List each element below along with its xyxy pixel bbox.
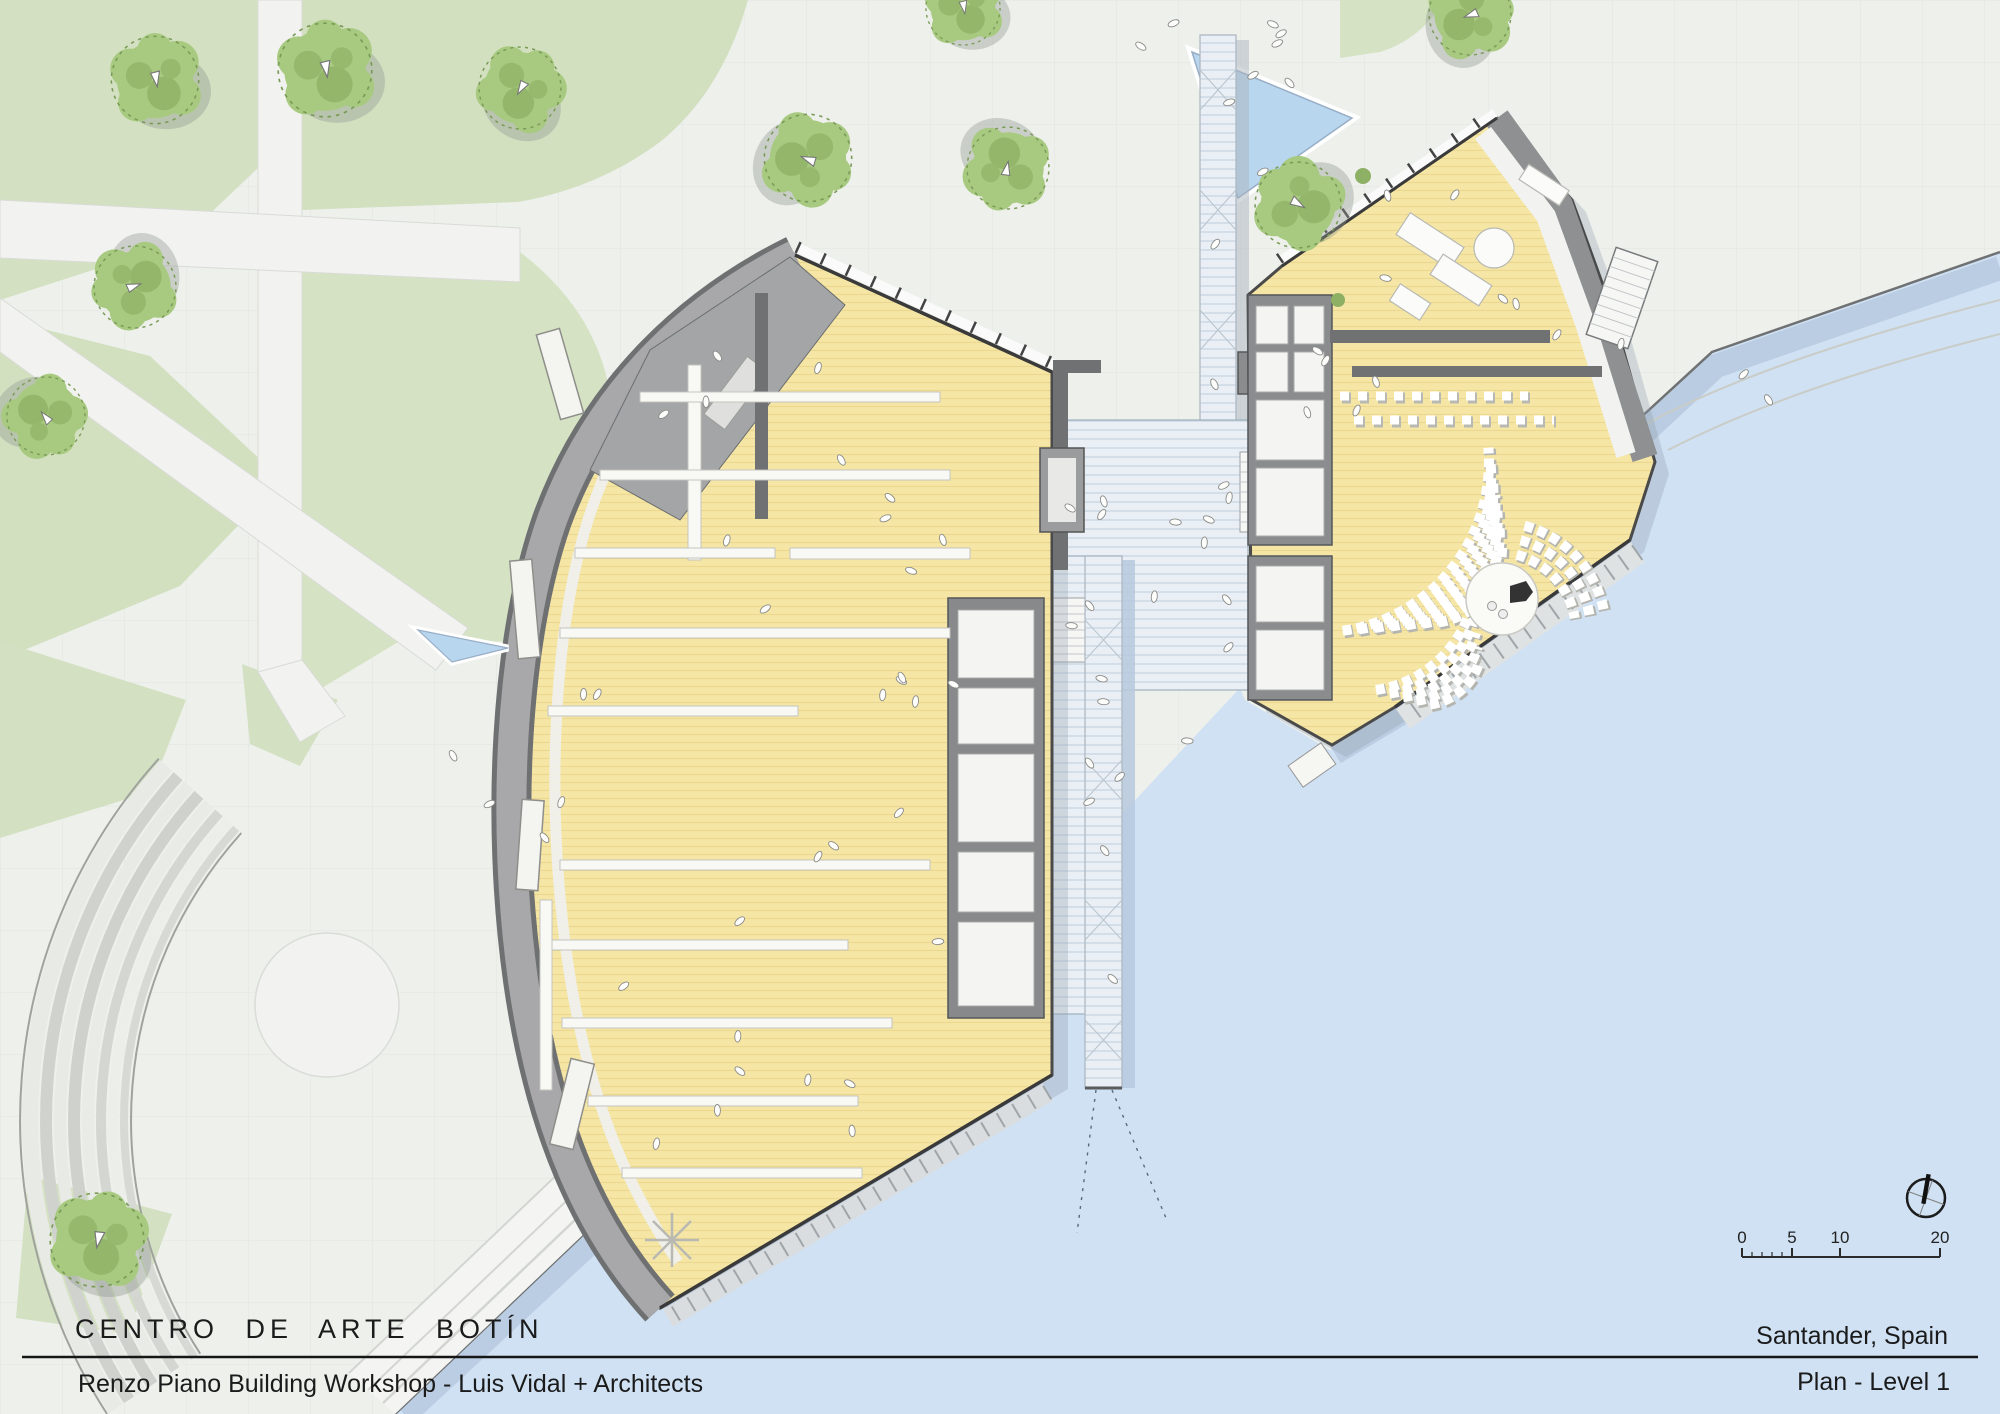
- scale-label-0: 0: [1737, 1228, 1746, 1247]
- plan-drawing: 0 5 10 20 CENTRO DE ARTE BOTÍN Renzo Pia…: [0, 0, 2000, 1414]
- stage: [1466, 563, 1538, 635]
- scale-label-20: 20: [1931, 1228, 1950, 1247]
- sheet-name: Plan - Level 1: [1797, 1368, 1950, 1396]
- restroom-wing: [1248, 295, 1332, 700]
- scale-label-5: 5: [1787, 1228, 1796, 1247]
- project-title: CENTRO DE ARTE BOTÍN: [75, 1314, 544, 1344]
- star-sculpture: [645, 1213, 699, 1267]
- indoor-plant: [1331, 293, 1345, 307]
- project-location: Santander, Spain: [1756, 1322, 1948, 1350]
- architects-credit: Renzo Piano Building Workshop - Luis Vid…: [78, 1370, 703, 1398]
- scale-label-10: 10: [1831, 1228, 1850, 1247]
- plaza-circle: [255, 933, 399, 1077]
- indoor-plant: [1355, 168, 1371, 184]
- service-core: [948, 598, 1044, 1018]
- floor-plan-sheet: 0 5 10 20 CENTRO DE ARTE BOTÍN Renzo Pia…: [0, 0, 2000, 1414]
